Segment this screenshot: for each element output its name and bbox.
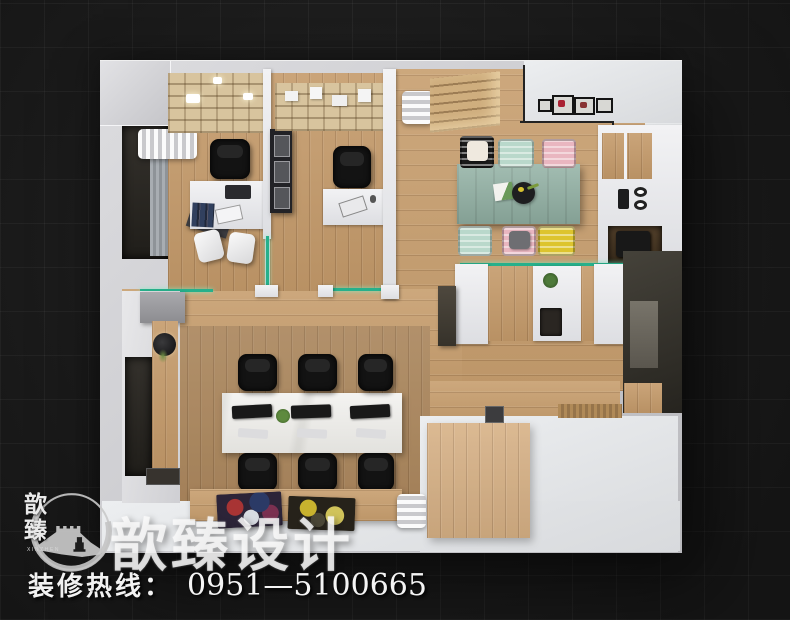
desk-plant xyxy=(276,409,290,423)
shelf-box-3 xyxy=(332,95,347,106)
guest-chair-2 xyxy=(226,231,256,264)
monitor-3 xyxy=(350,404,391,419)
workstation-chair-3 xyxy=(358,354,393,391)
corridor-radiator xyxy=(402,91,433,124)
logo-vertical-text: 歆臻 xyxy=(24,492,51,545)
office1-chair xyxy=(210,139,250,179)
table-magazine xyxy=(493,182,514,201)
frame-art xyxy=(580,102,587,108)
leaning-frame-3 xyxy=(574,97,595,115)
monitor-1 xyxy=(232,404,273,419)
wardrobe-frame-3 xyxy=(274,187,290,209)
office2-right-wall xyxy=(383,69,396,299)
keyboard-2 xyxy=(297,428,327,439)
corridor-wood-door xyxy=(624,383,662,413)
reception-desk-block xyxy=(427,423,530,538)
staircase xyxy=(430,71,500,132)
office1-books xyxy=(191,202,214,227)
feature-cabinet xyxy=(140,292,185,323)
side-cabinet-dark xyxy=(438,286,456,346)
monitor-2 xyxy=(291,404,331,418)
counter-wood-1 xyxy=(488,266,533,341)
meeting-chair-pink-bottom xyxy=(502,226,536,256)
entry-doormat xyxy=(558,404,622,418)
kitchen-appliance xyxy=(618,189,629,209)
counter-white-right xyxy=(594,264,623,344)
office1-radiator xyxy=(138,129,197,159)
frame-art xyxy=(558,100,565,107)
counter-plant xyxy=(543,273,558,288)
workstation-chair-2 xyxy=(298,354,337,391)
floor-outlet xyxy=(485,406,504,423)
leaning-frame-4 xyxy=(596,98,613,113)
tray-fruit-1 xyxy=(518,187,524,192)
office1-desk-tray xyxy=(225,185,251,199)
kitchen-wood-shelves xyxy=(602,133,652,179)
counter-white-left xyxy=(455,264,488,344)
ceiling-light-1 xyxy=(186,94,200,103)
stove-burner-2 xyxy=(634,200,647,210)
hotline-number: 0951—5100665 xyxy=(187,568,427,603)
promo-image: 歆臻 XINZHEN 歆臻设计 装修热线：0951—5100665 xyxy=(0,0,790,620)
glass-post-3 xyxy=(381,285,399,299)
ceiling-light-3 xyxy=(243,93,253,100)
workstation-chair-4 xyxy=(238,453,277,491)
leaning-frame-1 xyxy=(538,99,552,112)
meeting-chair-black xyxy=(460,136,494,168)
glass-partition-office2 xyxy=(327,288,385,291)
floor-mat-tablet xyxy=(146,468,180,485)
upper-level-floor xyxy=(524,61,682,123)
wardrobe-frame-1 xyxy=(274,135,290,157)
entry-radiator xyxy=(397,494,426,528)
wardrobe-frame-2 xyxy=(274,161,290,183)
gray-cushion xyxy=(509,231,530,249)
glass-post-2 xyxy=(318,285,333,297)
meeting-chair-mint-top xyxy=(498,139,534,168)
ceiling-light-2 xyxy=(213,77,222,84)
wedge-edge-v1 xyxy=(523,65,525,122)
hotline-row: 装修热线：0951—5100665 xyxy=(28,566,427,603)
workstation-chair-5 xyxy=(298,453,337,491)
logo-subtext: XINZHEN xyxy=(27,547,60,553)
shelf-box-1 xyxy=(285,91,298,101)
stove-burner-1 xyxy=(634,187,647,197)
floorplan-render xyxy=(100,60,682,553)
office2-mouse xyxy=(370,195,376,203)
wedge-edge-h xyxy=(520,121,614,123)
meeting-chair-pink-top xyxy=(542,139,576,168)
meeting-chair-yellow xyxy=(538,226,575,256)
meeting-chair-mint-bottom xyxy=(458,226,492,256)
counter-wood-2 xyxy=(581,266,594,341)
glass-partition-office1 xyxy=(266,236,269,290)
workstation-table xyxy=(222,393,402,453)
workstation-chair-1 xyxy=(238,354,277,391)
shelf-box-2 xyxy=(310,87,322,99)
office2-chair xyxy=(333,146,371,188)
shelf-box-4 xyxy=(358,89,371,102)
counter-sink xyxy=(540,308,562,336)
white-cushion xyxy=(467,141,488,161)
leaning-frame-2 xyxy=(552,95,574,115)
corner-wall-block xyxy=(100,61,171,126)
glass-post-1 xyxy=(255,285,278,297)
hotline-label: 装修热线： xyxy=(28,572,173,602)
workstation-chair-6 xyxy=(358,453,394,491)
display-niche xyxy=(125,357,152,476)
corridor-panel xyxy=(630,301,658,368)
kitchen-shelf-divider xyxy=(624,133,627,179)
decor-plant-sprig xyxy=(158,349,168,363)
